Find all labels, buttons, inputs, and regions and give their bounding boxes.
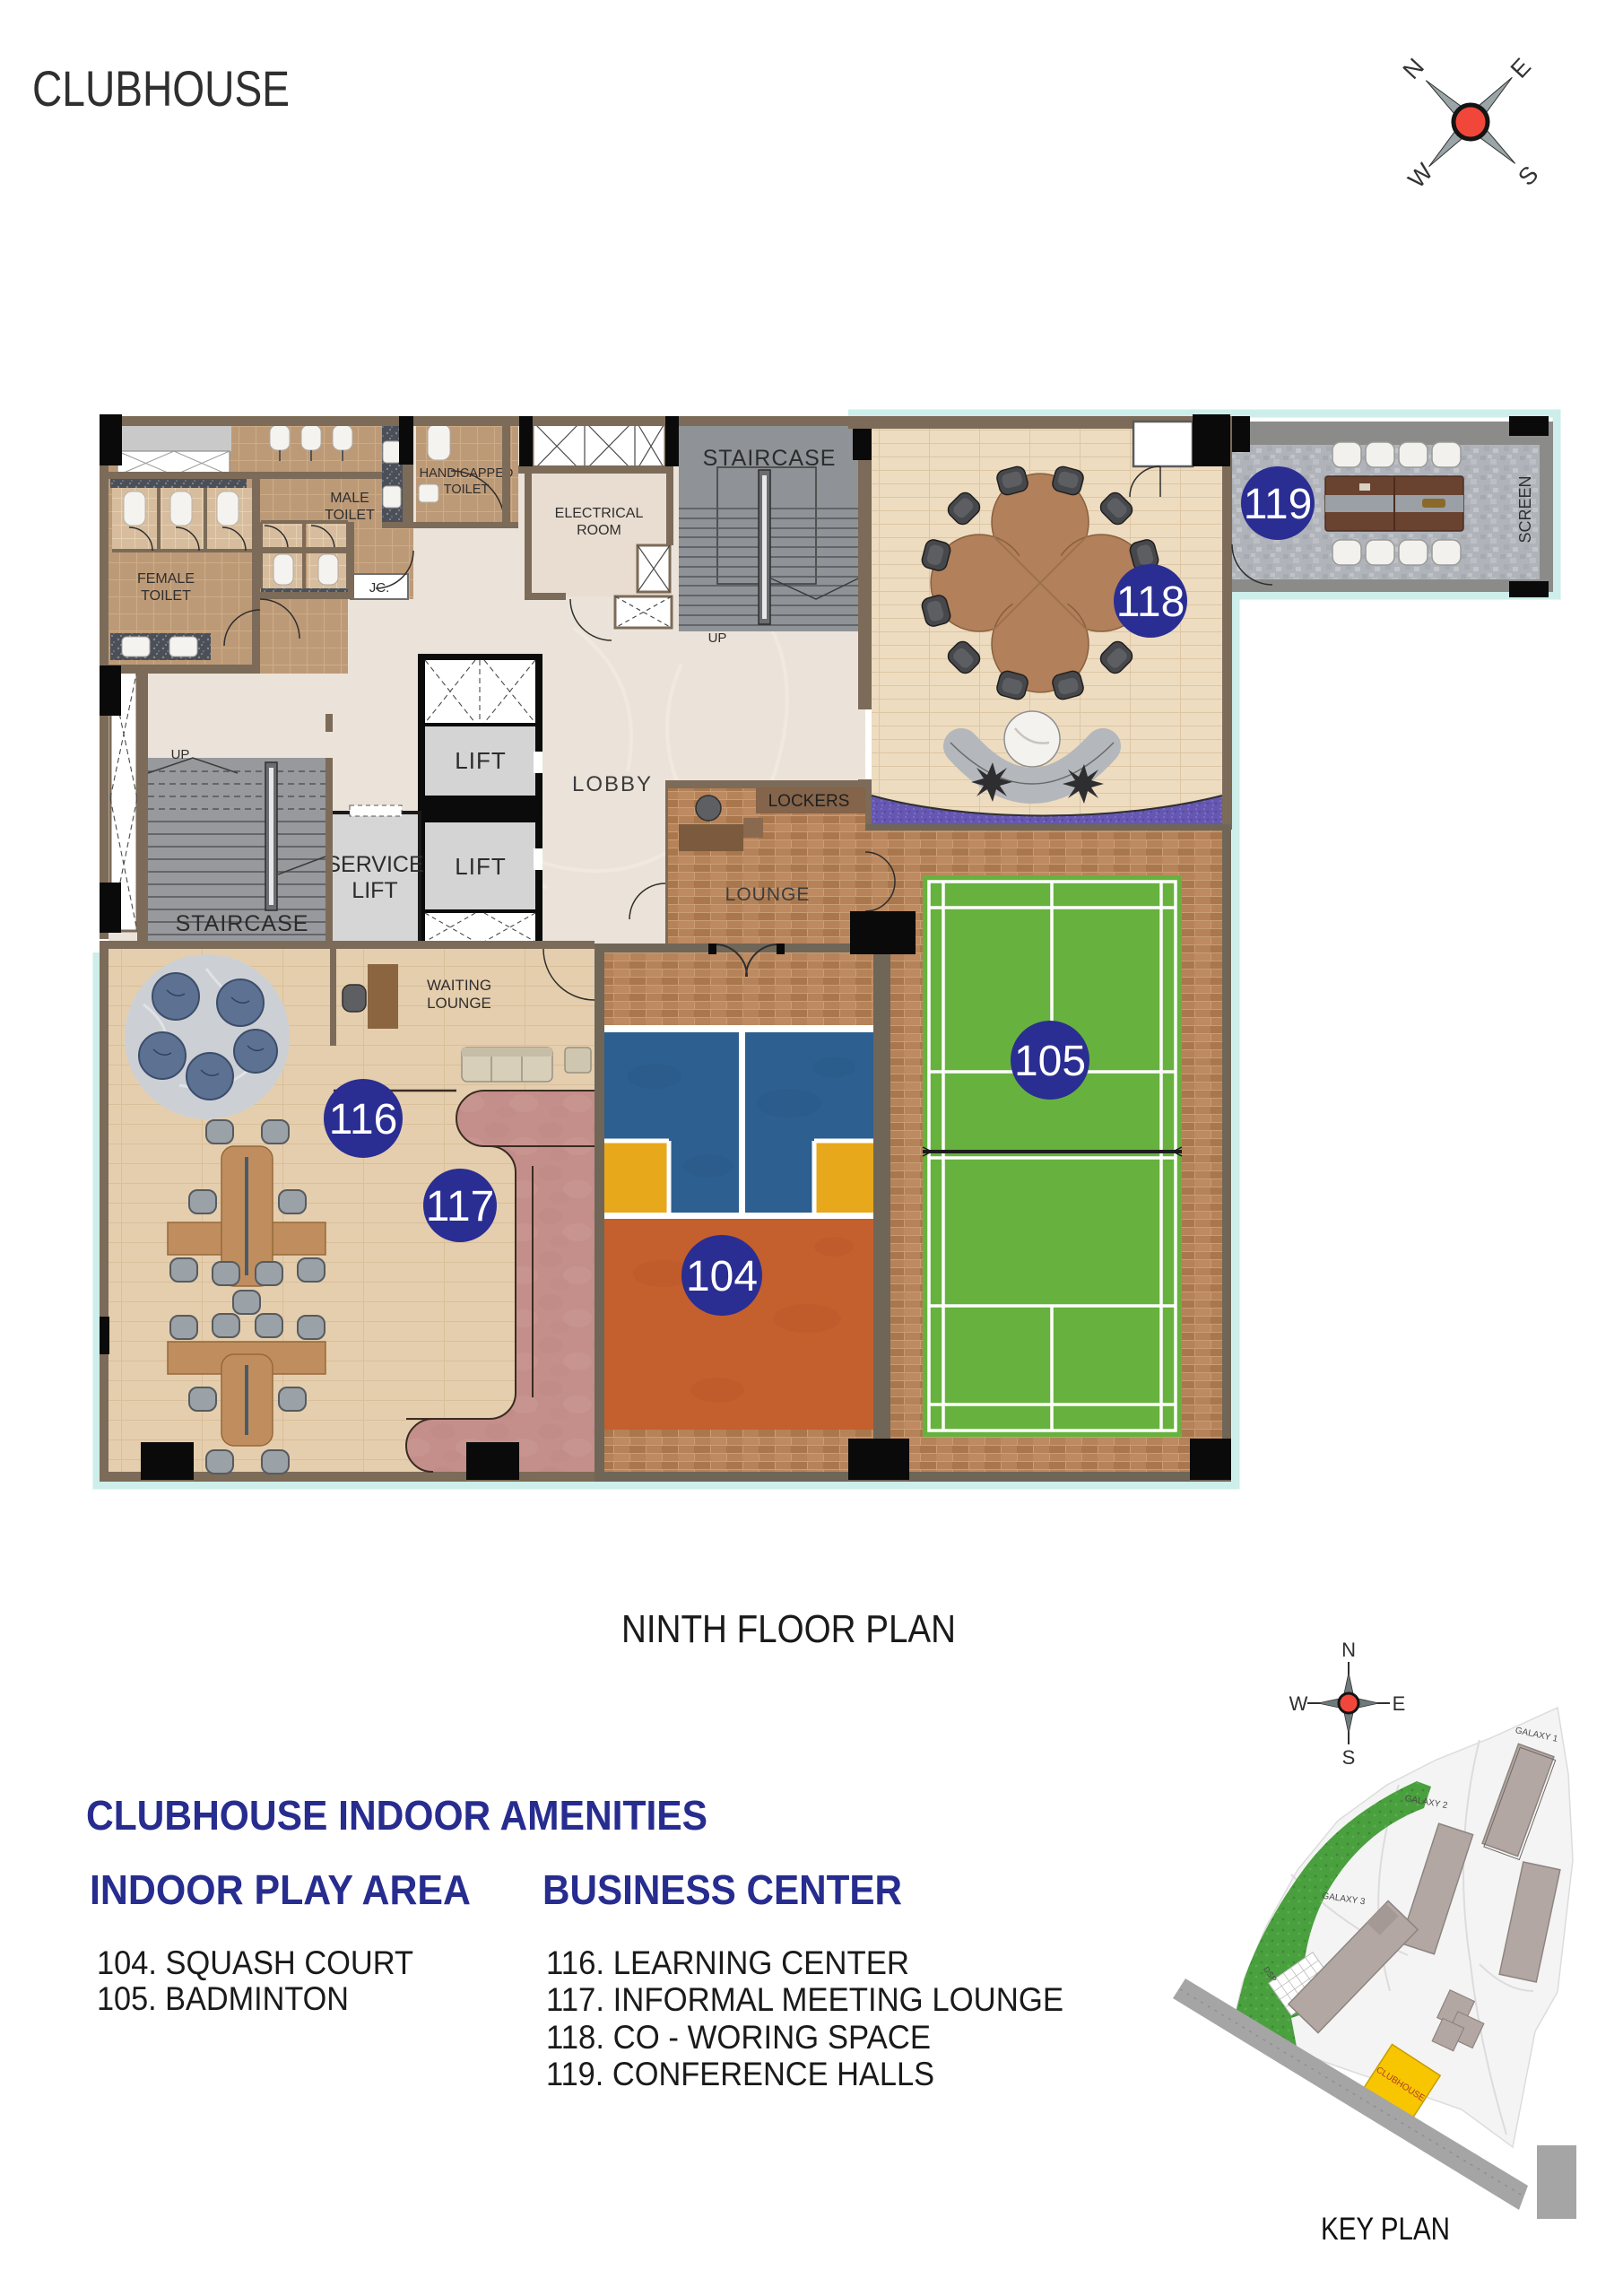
svg-text:117. INFORMAL MEETING LOUNGE: 117. INFORMAL MEETING LOUNGE — [546, 1981, 1063, 2018]
svg-text:N: N — [1341, 1639, 1356, 1661]
svg-text:BUSINESS CENTER: BUSINESS CENTER — [542, 1866, 902, 1913]
svg-text:STAIRCASE: STAIRCASE — [703, 446, 837, 471]
svg-text:LIFT: LIFT — [352, 878, 397, 903]
svg-text:KEY PLAN: KEY PLAN — [1321, 2212, 1450, 2247]
svg-text:UP: UP — [708, 631, 727, 646]
svg-text:LOUNGE: LOUNGE — [725, 884, 811, 905]
svg-text:NINTH FLOOR PLAN: NINTH FLOOR PLAN — [621, 1607, 956, 1651]
svg-text:ELECTRICAL: ELECTRICAL — [555, 506, 644, 521]
svg-text:119. CONFERENCE HALLS: 119. CONFERENCE HALLS — [546, 2056, 934, 2092]
svg-text:105. BADMINTON: 105. BADMINTON — [97, 1980, 349, 2017]
svg-text:LOUNGE: LOUNGE — [427, 995, 491, 1012]
svg-text:116. LEARNING CENTER: 116. LEARNING CENTER — [546, 1944, 909, 1981]
svg-text:ROOM: ROOM — [577, 523, 621, 538]
svg-text:116: 116 — [329, 1096, 398, 1144]
svg-text:TOILET: TOILET — [444, 483, 490, 497]
svg-text:MALE: MALE — [330, 491, 369, 506]
svg-text:117: 117 — [426, 1183, 495, 1231]
svg-text:INDOOR PLAY AREA: INDOOR PLAY AREA — [90, 1866, 471, 1913]
svg-text:E: E — [1393, 1692, 1406, 1715]
svg-text:S: S — [1342, 1746, 1356, 1769]
svg-text:104. SQUASH COURT: 104. SQUASH COURT — [97, 1944, 413, 1981]
svg-text:WAITING: WAITING — [427, 977, 491, 994]
svg-text:118. CO - WORING SPACE: 118. CO - WORING SPACE — [546, 2019, 931, 2056]
svg-text:W: W — [1289, 1692, 1308, 1715]
svg-text:STAIRCASE: STAIRCASE — [176, 911, 309, 936]
svg-text:CLUBHOUSE INDOOR AMENITIES: CLUBHOUSE INDOOR AMENITIES — [86, 1792, 707, 1839]
svg-text:104: 104 — [686, 1253, 758, 1300]
svg-text:LIFT: LIFT — [455, 853, 506, 880]
svg-text:118: 118 — [1116, 578, 1185, 626]
svg-text:SERVICE: SERVICE — [325, 852, 423, 877]
svg-text:LOBBY: LOBBY — [572, 772, 653, 796]
svg-text:TOILET: TOILET — [141, 588, 191, 604]
svg-text:FEMALE: FEMALE — [137, 571, 195, 587]
svg-text:UP: UP — [171, 747, 190, 762]
svg-text:CLUBHOUSE: CLUBHOUSE — [32, 60, 290, 117]
svg-text:119: 119 — [1244, 481, 1313, 528]
svg-text:SCREEN: SCREEN — [1516, 475, 1534, 543]
svg-text:LIFT: LIFT — [455, 747, 506, 774]
svg-text:105: 105 — [1014, 1038, 1086, 1085]
svg-text:LOCKERS: LOCKERS — [768, 792, 850, 811]
